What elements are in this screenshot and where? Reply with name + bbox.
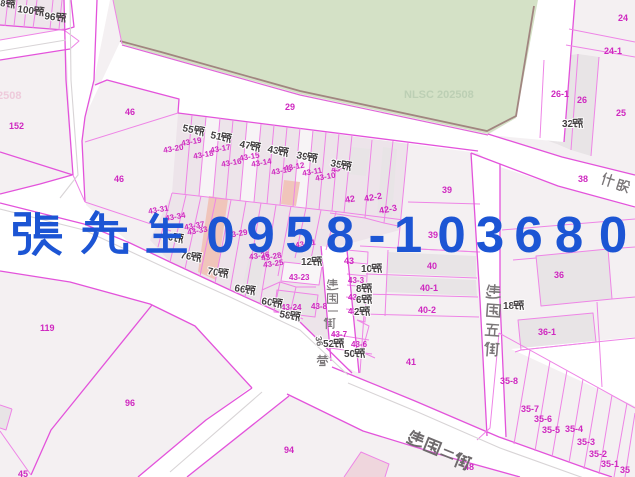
svg-text:35-2: 35-2 — [589, 449, 607, 459]
svg-text:35-1: 35-1 — [601, 459, 619, 469]
svg-text:0: 0 — [437, 206, 465, 263]
svg-text:24-1: 24-1 — [604, 46, 622, 56]
svg-text:96: 96 — [125, 398, 135, 408]
svg-text:39: 39 — [442, 185, 452, 195]
svg-text:26: 26 — [577, 95, 587, 105]
svg-text:45: 45 — [18, 469, 28, 477]
svg-text:96: 96 — [44, 11, 57, 24]
svg-text:26-1: 26-1 — [551, 89, 569, 99]
svg-text:36: 36 — [313, 335, 325, 347]
svg-text:24: 24 — [618, 13, 628, 23]
svg-text:46: 46 — [125, 107, 135, 117]
svg-text:36-1: 36-1 — [538, 327, 556, 337]
svg-text:38: 38 — [578, 174, 588, 184]
svg-text:35-8: 35-8 — [500, 376, 518, 386]
svg-text:0: 0 — [599, 206, 627, 263]
svg-text:35-3: 35-3 — [577, 437, 595, 447]
svg-text:40-2: 40-2 — [418, 305, 436, 315]
svg-text:35-4: 35-4 — [565, 424, 583, 434]
svg-text:35-7: 35-7 — [521, 404, 539, 414]
svg-text:8: 8 — [555, 206, 583, 263]
svg-text:46: 46 — [114, 174, 124, 184]
svg-text:36: 36 — [554, 270, 564, 280]
svg-text:40-1: 40-1 — [420, 283, 438, 293]
svg-text:43-8: 43-8 — [311, 302, 328, 311]
svg-text:35-6: 35-6 — [534, 414, 552, 424]
svg-text:119: 119 — [40, 323, 55, 333]
svg-text:35-5: 35-5 — [542, 425, 560, 435]
svg-text:8: 8 — [326, 206, 354, 263]
svg-text:43-23: 43-23 — [289, 273, 310, 282]
svg-text:94: 94 — [284, 445, 294, 455]
svg-text:1: 1 — [394, 206, 422, 263]
svg-text:3: 3 — [476, 206, 504, 263]
svg-text:152: 152 — [9, 121, 24, 131]
svg-text:42: 42 — [344, 193, 356, 205]
svg-text:5: 5 — [285, 206, 313, 263]
svg-text:-: - — [369, 206, 386, 263]
svg-text:NLSC 202508: NLSC 202508 — [404, 89, 474, 101]
svg-text:35: 35 — [620, 465, 630, 475]
svg-text:9: 9 — [246, 206, 274, 263]
svg-text:0: 0 — [206, 206, 234, 263]
svg-text:40: 40 — [427, 261, 437, 271]
svg-text:2508: 2508 — [0, 90, 21, 102]
svg-text:25: 25 — [616, 108, 626, 118]
svg-text:41: 41 — [406, 357, 416, 367]
svg-text:6: 6 — [514, 206, 542, 263]
svg-text:29: 29 — [285, 102, 295, 112]
